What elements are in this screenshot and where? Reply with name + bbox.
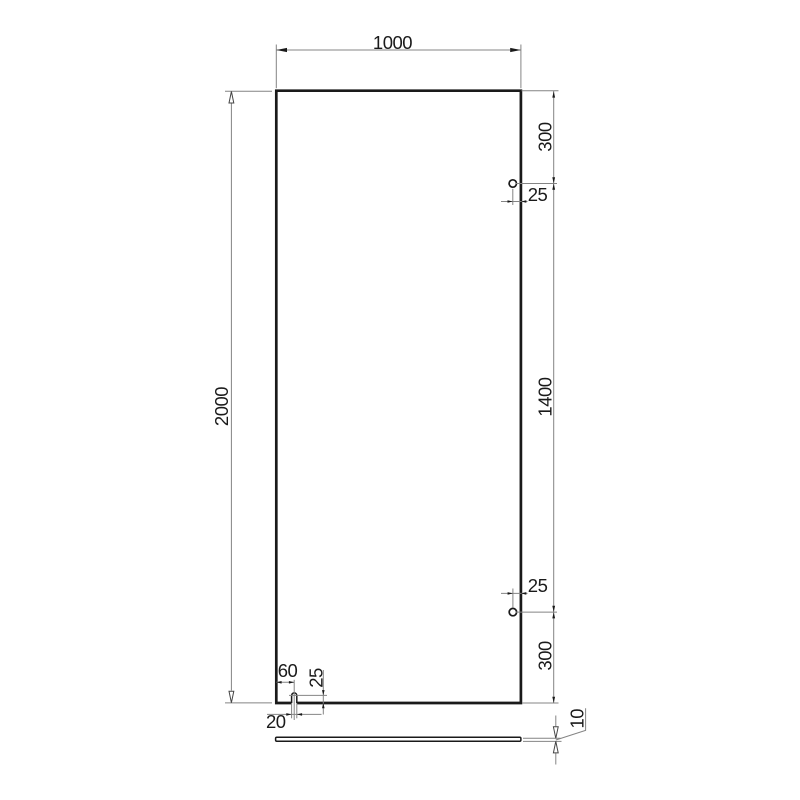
svg-text:2000: 2000 [211,387,232,426]
svg-text:1400: 1400 [535,377,556,416]
svg-text:1000: 1000 [373,32,412,53]
svg-text:20: 20 [266,711,286,732]
svg-text:300: 300 [535,122,556,152]
svg-text:60: 60 [278,660,298,681]
svg-text:25: 25 [305,668,326,688]
svg-text:25: 25 [528,575,548,596]
svg-text:300: 300 [535,641,556,671]
svg-text:10: 10 [566,709,587,729]
svg-text:25: 25 [528,184,548,205]
